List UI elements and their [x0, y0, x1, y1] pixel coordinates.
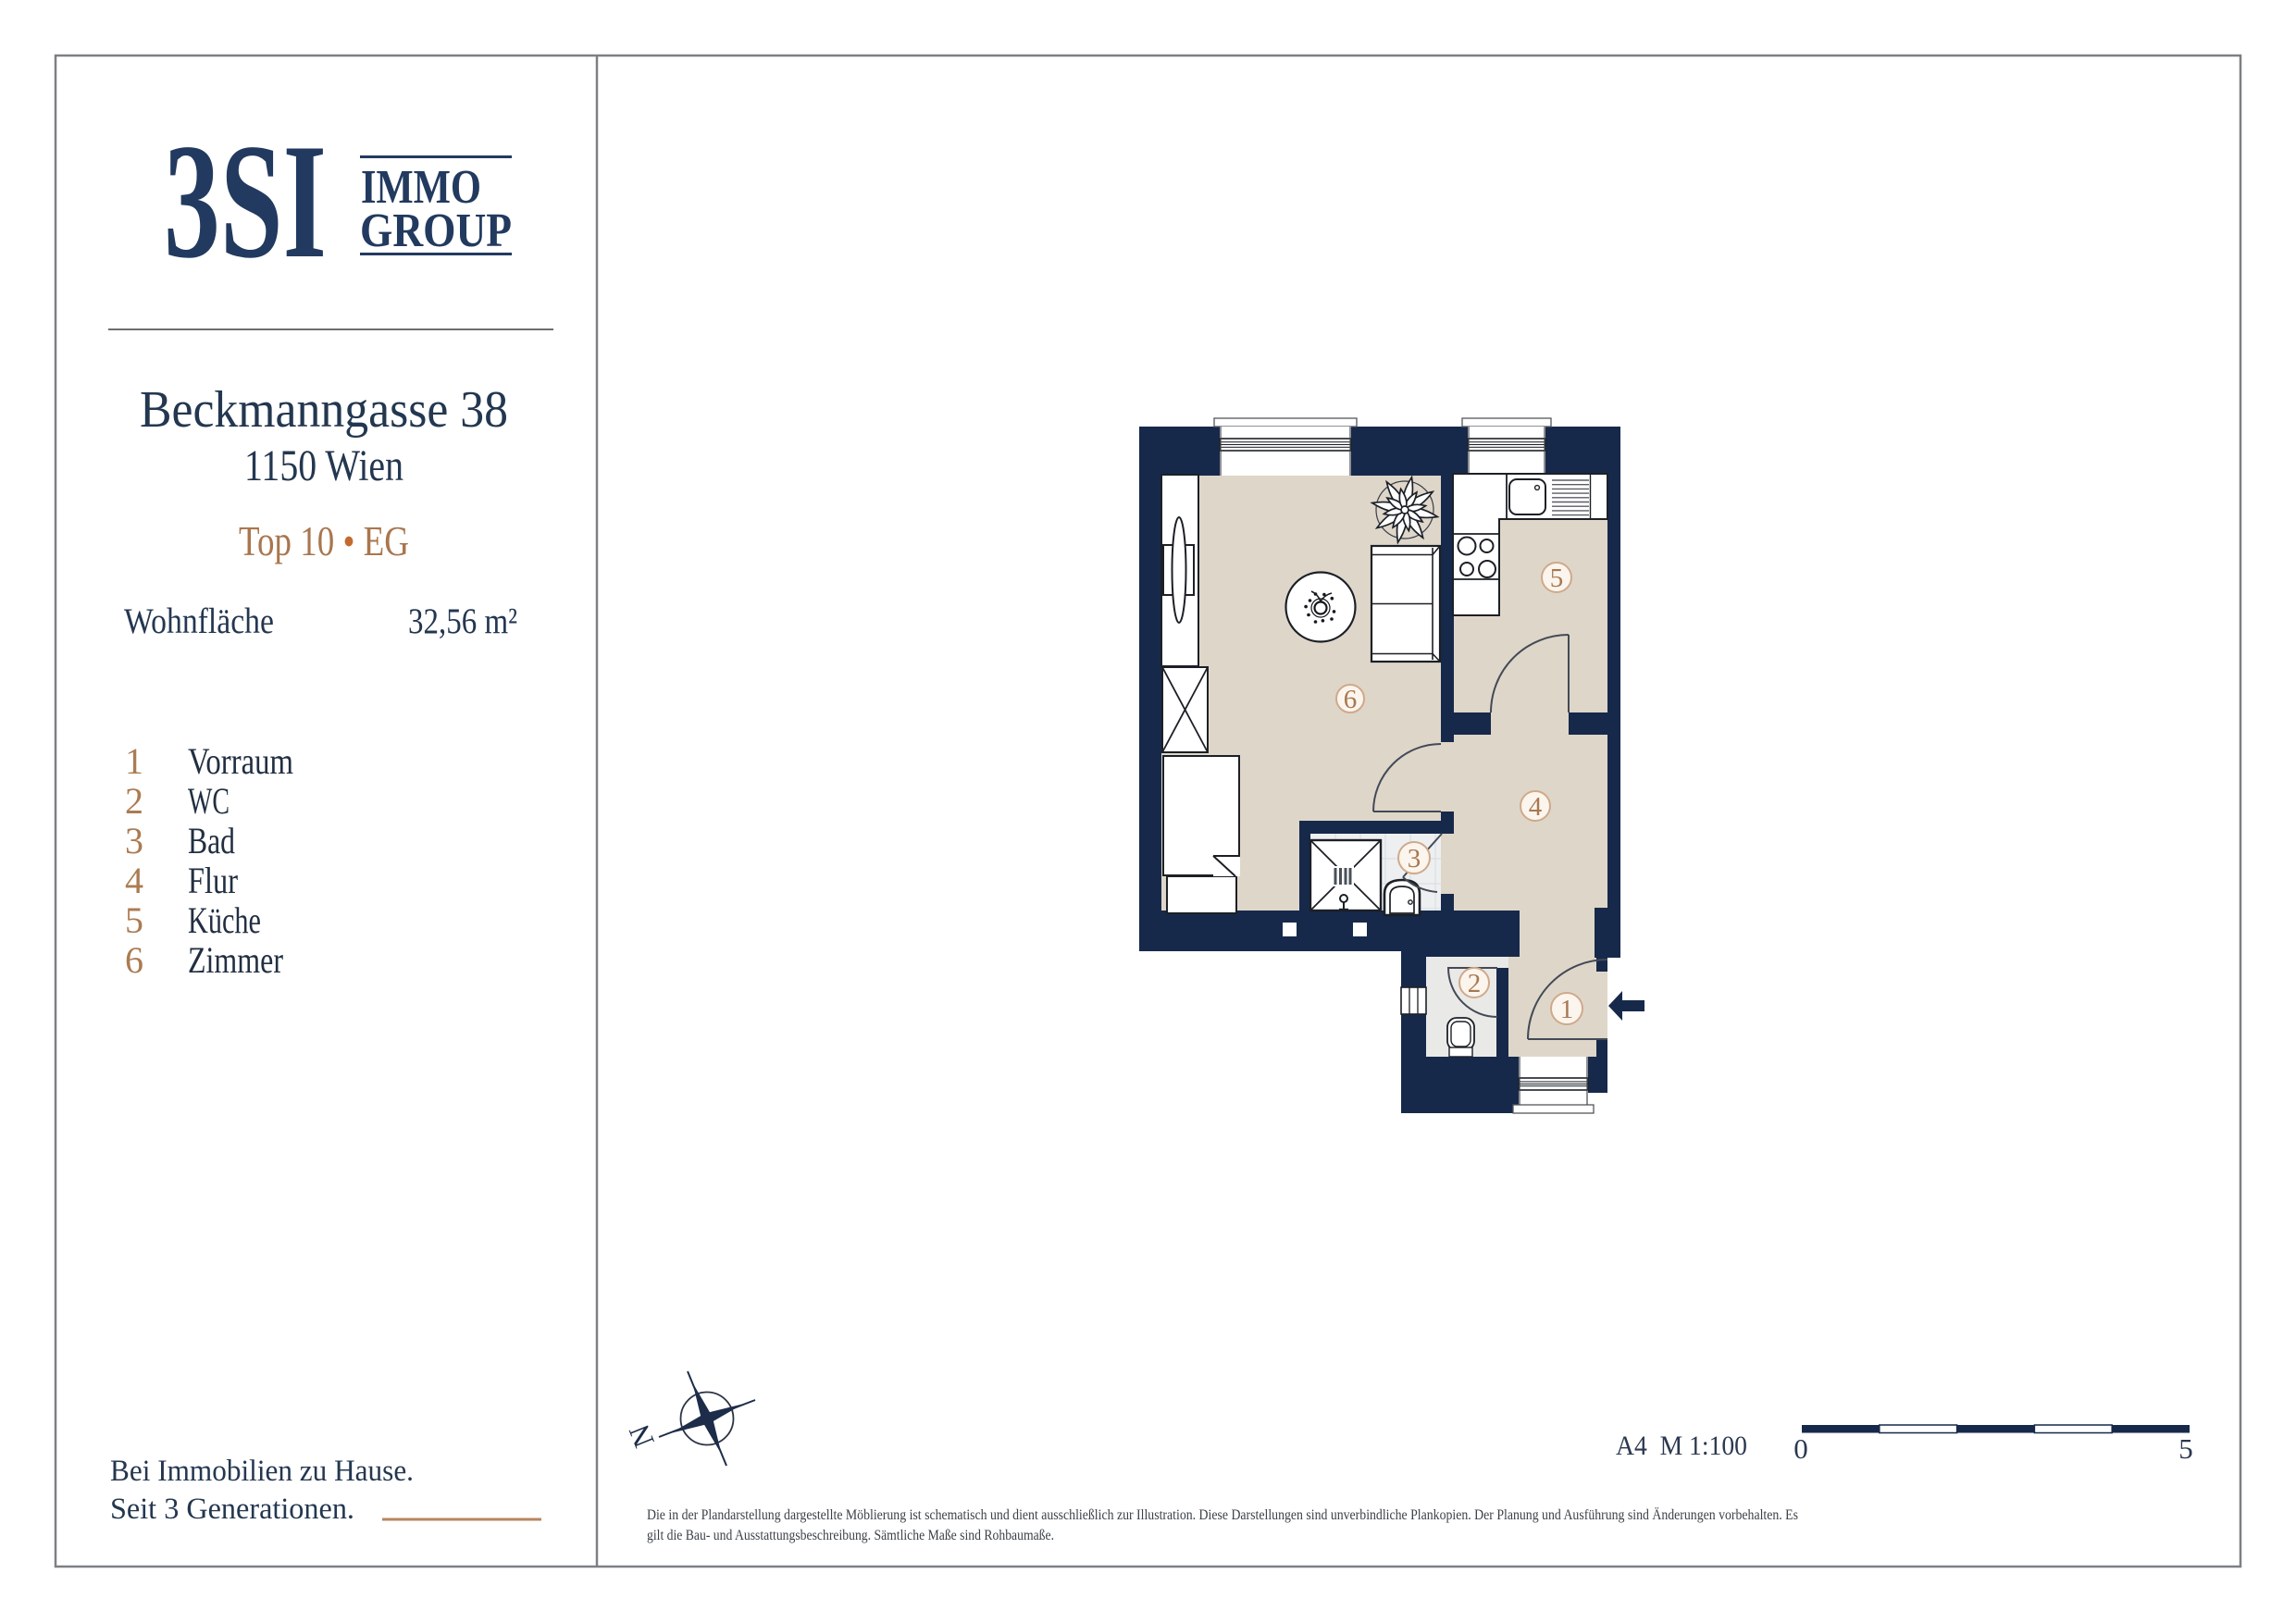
- svg-text:Bad: Bad: [188, 820, 235, 861]
- svg-text:Seit 3 Generationen.: Seit 3 Generationen.: [110, 1493, 354, 1526]
- svg-text:Wohnfläche: Wohnfläche: [124, 601, 274, 641]
- svg-text:Flur: Flur: [188, 860, 238, 901]
- svg-text:3: 3: [125, 820, 143, 861]
- svg-text:6: 6: [1344, 685, 1358, 714]
- svg-text:5: 5: [1550, 564, 1564, 593]
- svg-text:Bei Immobilien zu Hause.: Bei Immobilien zu Hause.: [110, 1455, 414, 1488]
- svg-text:Küche: Küche: [188, 899, 261, 941]
- svg-text:1: 1: [1560, 995, 1574, 1024]
- svg-text:Top 10 • EG: Top 10 • EG: [239, 517, 409, 564]
- svg-text:gilt die Bau- und Ausstattungs: gilt die Bau- und Ausstattungsbeschreibu…: [647, 1528, 1054, 1543]
- svg-text:1150 Wien: 1150 Wien: [244, 441, 403, 490]
- svg-text:4: 4: [1529, 792, 1543, 822]
- svg-text:3: 3: [1408, 844, 1421, 873]
- svg-text:1: 1: [125, 740, 143, 782]
- svg-text:N: N: [622, 1420, 661, 1453]
- svg-text:Vorraum: Vorraum: [188, 740, 293, 782]
- svg-text:A4 M 1:100: A4 M 1:100: [1616, 1431, 1747, 1461]
- svg-text:3SI: 3SI: [164, 109, 327, 292]
- svg-text:5: 5: [2178, 1432, 2193, 1465]
- svg-text:2: 2: [125, 780, 143, 822]
- svg-text:Beckmanngasse 38: Beckmanngasse 38: [140, 381, 508, 439]
- svg-text:Zimmer: Zimmer: [188, 939, 283, 981]
- svg-text:WC: WC: [188, 780, 230, 822]
- svg-text:6: 6: [125, 939, 143, 981]
- svg-text:5: 5: [125, 899, 143, 941]
- svg-text:GROUP: GROUP: [360, 204, 512, 257]
- svg-text:2: 2: [1468, 969, 1482, 998]
- svg-text:32,56 m²: 32,56 m²: [408, 601, 517, 641]
- svg-text:0: 0: [1793, 1432, 1808, 1465]
- svg-text:Die in der Plandarstellung dar: Die in der Plandarstellung dargestellte …: [647, 1507, 1798, 1523]
- svg-text:4: 4: [125, 860, 143, 901]
